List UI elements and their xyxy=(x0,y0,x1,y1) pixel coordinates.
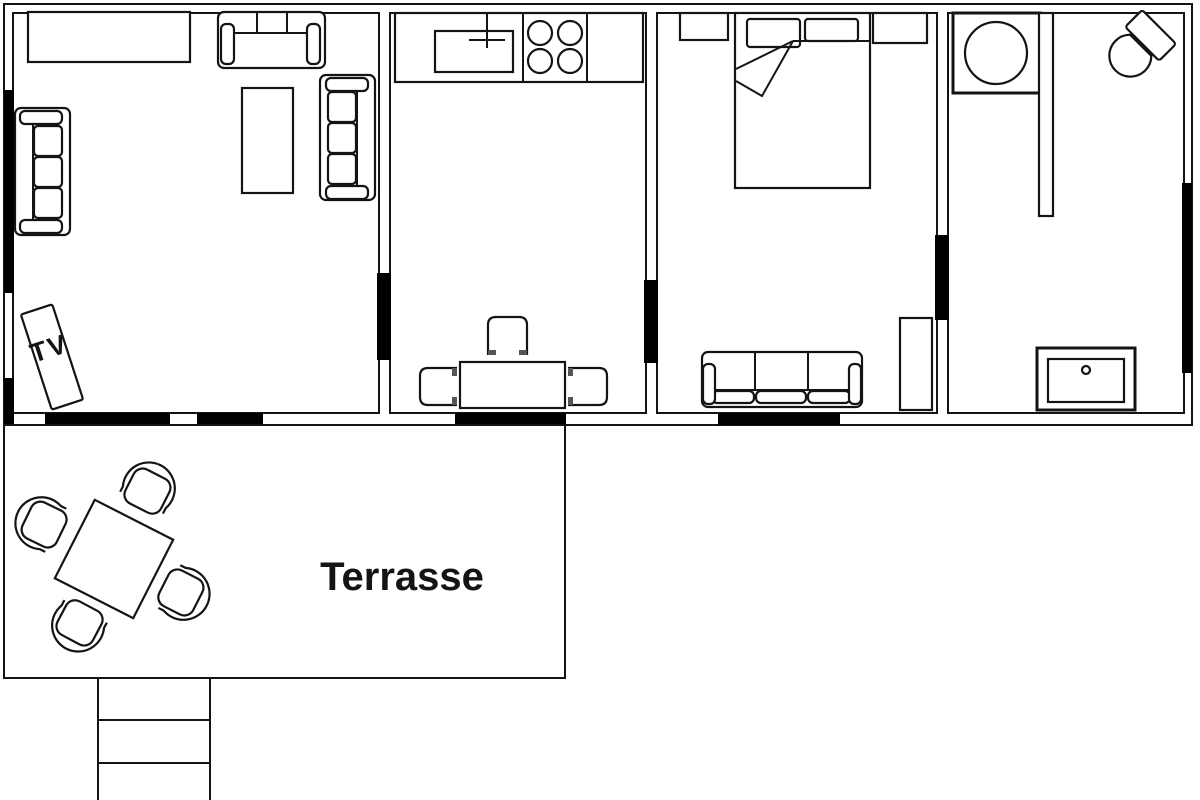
living-left-window xyxy=(4,90,14,293)
sofa-cushion xyxy=(328,123,356,153)
toilet xyxy=(1099,10,1177,88)
tv-unit: TV xyxy=(18,303,86,410)
steps-outline xyxy=(98,678,210,800)
sofa-cushion xyxy=(808,391,850,403)
coffee-table xyxy=(242,88,293,193)
burner xyxy=(558,49,582,73)
terrace: Terrasse xyxy=(4,425,565,678)
sofa-top xyxy=(218,12,325,68)
kitchen-bottom-door xyxy=(455,413,566,425)
sofa-arm xyxy=(20,220,62,233)
drain-icon xyxy=(1082,366,1090,374)
terrace-chair xyxy=(152,561,218,629)
terrace-chair xyxy=(116,453,184,519)
sofa-arm xyxy=(326,186,368,199)
dining-chair-top xyxy=(488,317,527,355)
dining-chair-right xyxy=(568,368,607,405)
kitchen-bedroom-door xyxy=(644,280,658,363)
shower-basin xyxy=(965,22,1027,84)
sofa-arm xyxy=(703,364,715,404)
bathroom-sink xyxy=(1037,348,1135,410)
sofa-cushion xyxy=(712,391,754,403)
partition-wall xyxy=(1039,13,1053,216)
wardrobe-top xyxy=(873,13,927,43)
room-bedroom xyxy=(680,13,932,410)
bedroom-bathroom-door xyxy=(935,235,949,320)
dining-set xyxy=(420,317,607,408)
sofa-cushion xyxy=(756,391,806,403)
sideboard xyxy=(28,12,190,62)
double-bed xyxy=(735,13,870,188)
sofa-right xyxy=(320,75,375,200)
dining-chair-left xyxy=(420,368,457,405)
sofa-cushion xyxy=(328,92,356,122)
room-kitchen xyxy=(395,13,643,408)
burner xyxy=(528,49,552,73)
living-kitchen-door xyxy=(377,273,391,360)
terrace-label: Terrasse xyxy=(320,555,484,599)
living-bottom-window-2 xyxy=(197,413,263,425)
entrance-steps xyxy=(98,678,210,800)
living-left-lower-window xyxy=(4,378,14,424)
sofa-cushion xyxy=(328,154,356,184)
bathroom-right-window xyxy=(1182,183,1192,373)
bedroom-bottom-window xyxy=(718,413,840,425)
sofa-arm xyxy=(326,78,368,91)
terrace-chair xyxy=(43,594,111,661)
sofa-cushion xyxy=(34,126,62,156)
sofa-left xyxy=(15,108,70,235)
sofa-arm xyxy=(307,24,320,64)
sofa-bedroom xyxy=(702,352,862,407)
kitchen-counter xyxy=(395,13,643,82)
sofa-arm xyxy=(849,364,861,404)
sofa-arm xyxy=(221,24,234,64)
dining-table xyxy=(460,362,565,408)
burner xyxy=(558,21,582,45)
pillow xyxy=(805,19,858,41)
burner xyxy=(528,21,552,45)
kitchen-sink xyxy=(435,31,513,72)
sofa-cushion xyxy=(34,188,62,218)
floor-plan-canvas: TV xyxy=(0,0,1200,800)
terrace-chair xyxy=(7,488,73,556)
sofa-arm xyxy=(20,111,62,124)
room-living: TV xyxy=(15,12,375,411)
shower xyxy=(953,13,1040,93)
nightstand xyxy=(680,13,728,40)
tall-cabinet xyxy=(900,318,932,410)
living-bottom-window-1 xyxy=(45,413,170,425)
room-bathroom xyxy=(953,10,1176,410)
floor-plan: TV xyxy=(0,0,1200,800)
sofa-cushion xyxy=(34,157,62,187)
